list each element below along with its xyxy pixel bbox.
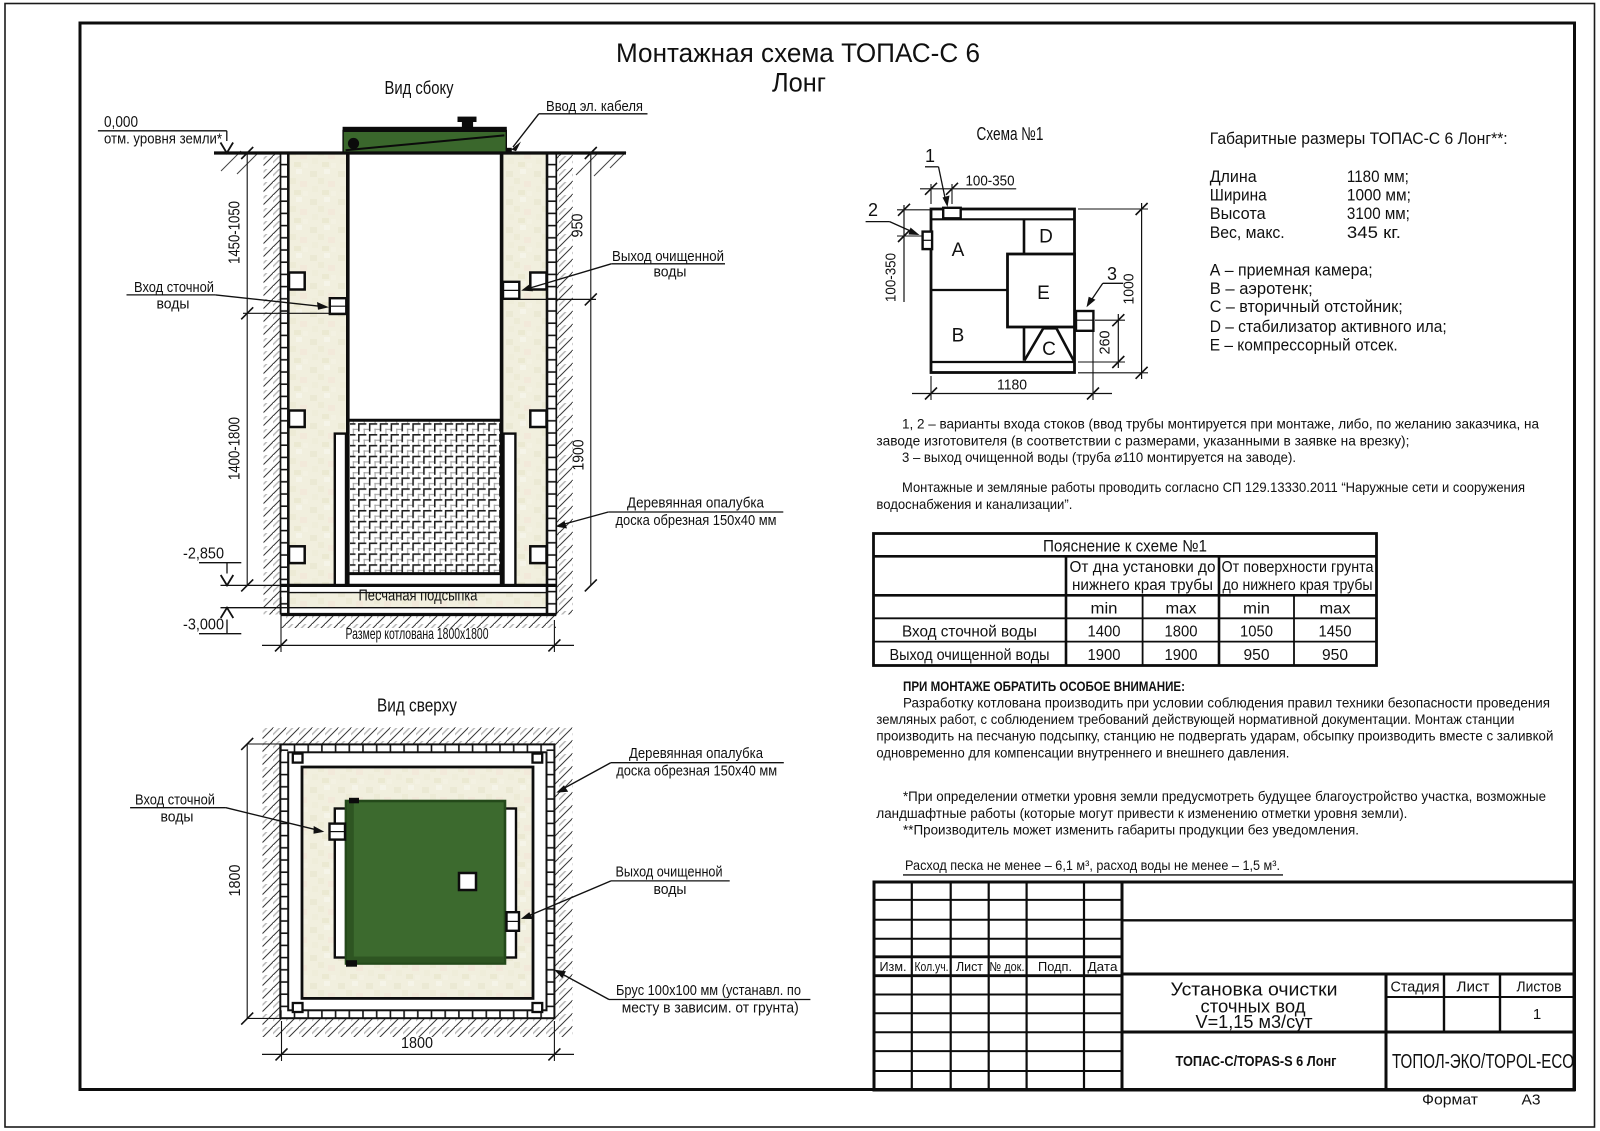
- svg-text:нижнего края трубы: нижнего края трубы: [1072, 577, 1213, 594]
- svg-text:Монтажные и земляные работы пр: Монтажные и земляные работы проводить со…: [902, 479, 1525, 495]
- svg-text:водоснабжения и канализации”.: водоснабжения и канализации”.: [876, 496, 1072, 512]
- svg-text:Разработку котлована производи: Разработку котлована производить при усл…: [903, 695, 1550, 711]
- svg-text:1: 1: [925, 146, 935, 166]
- svg-text:2: 2: [868, 200, 878, 220]
- svg-text:Е – компрессорный отсек.: Е – компрессорный отсек.: [1210, 335, 1398, 354]
- svg-text:Лонг: Лонг: [772, 68, 826, 98]
- svg-text:max: max: [1166, 601, 1197, 618]
- svg-text:**Производитель может изменить: **Производитель может изменить габариты …: [903, 822, 1359, 838]
- svg-text:*При определении отметки уровн: *При определении отметки уровня земли пр…: [903, 788, 1546, 804]
- svg-text:ПРИ МОНТАЖЕ ОБРАТИТЬ ОСОБОЕ ВН: ПРИ МОНТАЖЕ ОБРАТИТЬ ОСОБОЕ ВНИМАНИЕ:: [903, 678, 1185, 694]
- svg-text:А – приемная камера;: А – приемная камера;: [1210, 260, 1373, 279]
- svg-text:Схема №1: Схема №1: [977, 123, 1044, 144]
- svg-text:В – аэротенк;: В – аэротенк;: [1210, 279, 1313, 298]
- svg-text:Формат: Формат: [1422, 1092, 1478, 1109]
- svg-text:1050: 1050: [1240, 624, 1273, 641]
- svg-text:Расход песка не менее – 6,1 м³: Расход песка не менее – 6,1 м³, расход в…: [905, 857, 1280, 873]
- svg-text:Высота: Высота: [1210, 204, 1267, 223]
- svg-text:min: min: [1091, 601, 1118, 618]
- svg-text:От дна установки до: От дна установки до: [1070, 559, 1216, 576]
- svg-text:Дата: Дата: [1088, 959, 1119, 974]
- svg-text:Пояснение к схеме №1: Пояснение к схеме №1: [1043, 538, 1207, 556]
- svg-text:100-350: 100-350: [966, 173, 1015, 190]
- svg-text:1180: 1180: [997, 377, 1027, 394]
- svg-text:производить на песчаную подсып: производить на песчаную подсыпку, станци…: [876, 728, 1553, 744]
- svg-text:1900: 1900: [1088, 647, 1121, 664]
- svg-text:Выход очищенной: Выход очищенной: [612, 248, 724, 265]
- svg-text:Длина: Длина: [1210, 167, 1258, 186]
- svg-text:Изм.: Изм.: [880, 959, 907, 974]
- svg-text:1180 мм;: 1180 мм;: [1347, 167, 1409, 186]
- svg-text:B: B: [952, 326, 965, 347]
- svg-text:ТОПОЛ-ЭКО/TOPOL-ECO: ТОПОЛ-ЭКО/TOPOL-ECO: [1392, 1051, 1574, 1073]
- svg-text:Деревянная опалубка: Деревянная опалубка: [629, 745, 764, 762]
- svg-text:заводе изготовителя (в соответ: заводе изготовителя (в соответствии с ра…: [876, 433, 1409, 449]
- svg-text:1450: 1450: [1319, 624, 1352, 641]
- svg-text:Брус 100х100 мм (устанавл. по: Брус 100х100 мм (устанавл. по: [616, 982, 801, 999]
- svg-text:ТОПАС-С/TOPAS-S 6 Лонг: ТОПАС-С/TOPAS-S 6 Лонг: [1176, 1053, 1337, 1070]
- svg-text:1900: 1900: [571, 439, 588, 470]
- svg-text:Выход очищенной: Выход очищенной: [616, 864, 723, 881]
- svg-text:доска обрезная 150х40 мм: доска обрезная 150х40 мм: [616, 512, 777, 529]
- svg-text:С – вторичный отстойник;: С – вторичный отстойник;: [1210, 297, 1403, 316]
- svg-text:1800: 1800: [1165, 624, 1198, 641]
- svg-text:От поверхности грунта: От поверхности грунта: [1222, 559, 1374, 576]
- svg-text:1450-1050: 1450-1050: [227, 201, 244, 264]
- svg-text:Песчаная подсыпка: Песчаная подсыпка: [359, 588, 478, 605]
- svg-text:1800: 1800: [227, 864, 244, 896]
- svg-text:3 – выход очищенной воды (труб: 3 – выход очищенной воды (труба ⌀110 мон…: [902, 449, 1296, 465]
- svg-text:Габаритные размеры ТОПАС-С 6 Л: Габаритные размеры ТОПАС-С 6 Лонг**:: [1210, 129, 1508, 148]
- svg-text:-2,850: -2,850: [183, 546, 224, 563]
- svg-text:V=1,15 м3/сут: V=1,15 м3/сут: [1196, 1012, 1313, 1032]
- svg-text:одновременно для компенсации в: одновременно для компенсации внутреннего…: [876, 744, 1289, 760]
- svg-text:Размер котлована 1800х1800: Размер котлована 1800х1800: [346, 626, 489, 643]
- svg-text:1900: 1900: [1165, 647, 1198, 664]
- svg-text:доска обрезная 150х40 мм: доска обрезная 150х40 мм: [616, 762, 777, 779]
- svg-text:Вес, макс.: Вес, макс.: [1210, 223, 1285, 242]
- svg-text:Вход сточной: Вход сточной: [134, 279, 214, 296]
- svg-text:Вид сверху: Вид сверху: [377, 695, 458, 716]
- svg-text:D: D: [1039, 226, 1053, 247]
- svg-text:E: E: [1037, 283, 1050, 304]
- svg-text:max: max: [1320, 601, 1351, 618]
- svg-text:345 кг.: 345 кг.: [1347, 223, 1401, 242]
- svg-text:Вход сточной: Вход сточной: [135, 792, 215, 809]
- svg-text:Стадия: Стадия: [1391, 979, 1440, 996]
- svg-text:воды: воды: [157, 296, 190, 313]
- svg-text:Вход сточной воды: Вход сточной воды: [902, 624, 1037, 641]
- svg-text:1400-1800: 1400-1800: [227, 417, 244, 480]
- svg-text:отм. уровня земли*: отм. уровня земли*: [104, 132, 222, 148]
- svg-text:min: min: [1243, 601, 1270, 618]
- svg-text:950: 950: [1244, 647, 1270, 664]
- svg-text:Кол.уч.: Кол.уч.: [915, 959, 949, 974]
- svg-text:3: 3: [1107, 264, 1117, 284]
- svg-text:Ширина: Ширина: [1210, 185, 1267, 204]
- svg-text:№ док.: № док.: [990, 959, 1025, 974]
- svg-text:1, 2 – варианты входа стоков: 1, 2 – варианты входа стоков (ввод трубы…: [902, 416, 1539, 432]
- svg-text:D – стабилизатор активного ила: D – стабилизатор активного ила;: [1210, 317, 1447, 336]
- svg-text:воды: воды: [161, 809, 194, 826]
- svg-text:Лист: Лист: [956, 959, 983, 974]
- svg-text:до нижнего края трубы: до нижнего края трубы: [1223, 577, 1373, 594]
- svg-text:Листов: Листов: [1517, 979, 1562, 996]
- svg-text:-3,000: -3,000: [183, 617, 224, 634]
- svg-text:воды: воды: [654, 881, 687, 898]
- svg-text:1000 мм;: 1000 мм;: [1347, 185, 1411, 204]
- svg-text:A: A: [952, 240, 965, 261]
- svg-text:Выход очищенной воды: Выход очищенной воды: [890, 647, 1050, 664]
- svg-text:Деревянная опалубка: Деревянная опалубка: [627, 495, 765, 512]
- svg-text:Лист: Лист: [1457, 979, 1490, 996]
- svg-text:1800: 1800: [401, 1035, 433, 1052]
- svg-text:А3: А3: [1522, 1092, 1541, 1109]
- svg-text:100-350: 100-350: [883, 253, 900, 302]
- svg-text:Ввод эл. кабеля: Ввод эл. кабеля: [546, 98, 643, 115]
- svg-text:950: 950: [1322, 647, 1348, 664]
- svg-text:1: 1: [1533, 1006, 1541, 1023]
- svg-text:Подп.: Подп.: [1038, 959, 1072, 974]
- svg-text:260: 260: [1097, 331, 1114, 355]
- svg-text:ландшафтные работы (которые мо: ландшафтные работы (которые могут привес…: [876, 805, 1407, 821]
- svg-text:земляных работ, с соблюдением: земляных работ, с соблюдением требований…: [876, 711, 1514, 727]
- svg-text:1400: 1400: [1088, 624, 1121, 641]
- svg-text:Вид сбоку: Вид сбоку: [385, 77, 455, 98]
- svg-text:месту в зависим. от грунта): месту в зависим. от грунта): [622, 999, 799, 1016]
- svg-text:950: 950: [570, 213, 587, 237]
- svg-text:воды: воды: [654, 264, 687, 281]
- svg-text:Монтажная схема ТОПАС-С 6: Монтажная схема ТОПАС-С 6: [616, 38, 980, 68]
- svg-text:0,000: 0,000: [104, 114, 138, 131]
- svg-text:C: C: [1042, 339, 1056, 360]
- svg-text:1000: 1000: [1121, 274, 1138, 305]
- svg-text:3100 мм;: 3100 мм;: [1347, 204, 1410, 223]
